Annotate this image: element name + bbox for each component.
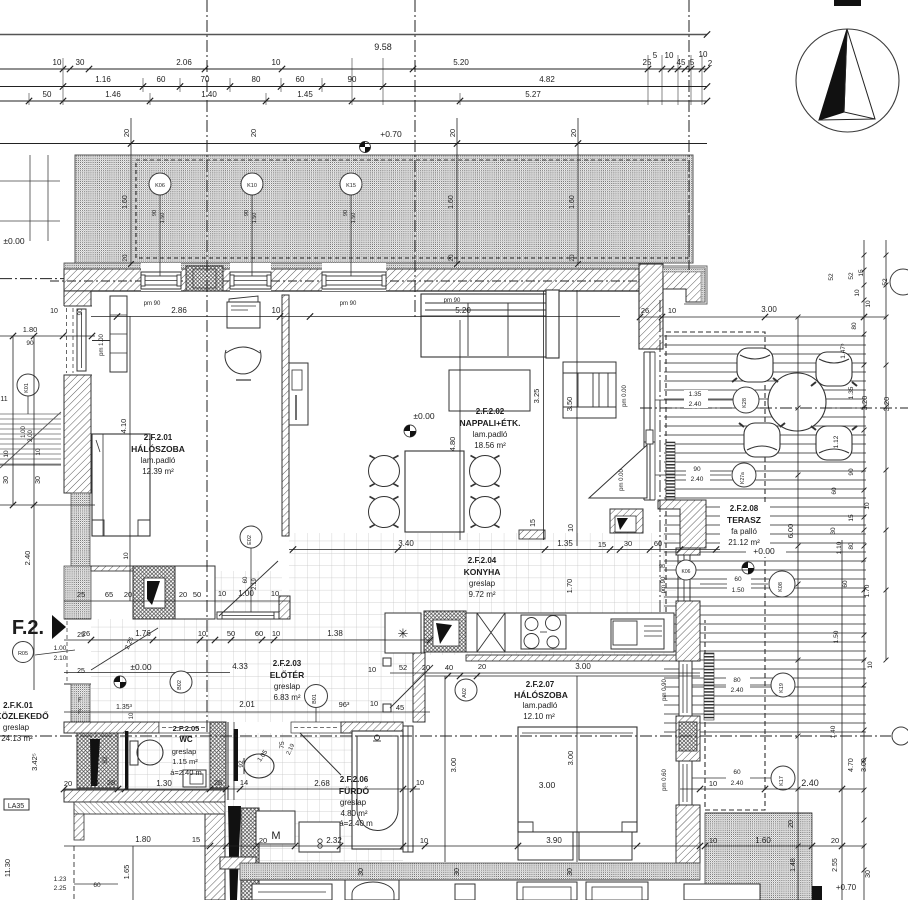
svg-text:20: 20 [422, 663, 430, 672]
svg-text:3.42⁵: 3.42⁵ [30, 753, 39, 771]
svg-text:2.25: 2.25 [54, 885, 67, 892]
svg-text:greslap: greslap [3, 723, 30, 732]
svg-text:±0.00: ±0.00 [3, 236, 24, 246]
svg-text:KONYHA: KONYHA [464, 567, 501, 577]
svg-text:2.F.2.08: 2.F.2.08 [730, 504, 759, 513]
svg-text:3.00: 3.00 [861, 758, 868, 772]
svg-text:60: 60 [157, 75, 166, 84]
svg-text:3.20: 3.20 [860, 396, 869, 411]
svg-text:9.58: 9.58 [374, 42, 392, 52]
svg-text:90: 90 [348, 75, 357, 84]
svg-text:✳: ✳ [398, 626, 409, 641]
svg-text:M: M [271, 830, 280, 842]
svg-text:10: 10 [368, 665, 376, 674]
svg-text:15: 15 [530, 519, 537, 527]
svg-text:5.20: 5.20 [453, 58, 469, 67]
svg-text:10: 10 [35, 448, 42, 456]
svg-text:10: 10 [218, 589, 226, 598]
svg-text:pm 0.60: pm 0.60 [662, 769, 668, 791]
svg-text:WC: WC [179, 735, 193, 744]
svg-text:1.35: 1.35 [557, 539, 573, 548]
svg-text:1.80: 1.80 [23, 325, 38, 334]
svg-text:FÜRDŐ: FÜRDŐ [339, 785, 370, 796]
svg-text:60: 60 [255, 629, 263, 638]
svg-text:ELŐTÉR: ELŐTÉR [270, 669, 304, 680]
svg-text:6.00: 6.00 [786, 524, 795, 539]
svg-text:24.13 m²: 24.13 m² [1, 734, 33, 743]
svg-text:26: 26 [641, 306, 649, 315]
svg-text:1.60: 1.60 [448, 195, 455, 209]
svg-text:1.30: 1.30 [156, 779, 172, 788]
svg-text:1.48: 1.48 [790, 858, 797, 872]
svg-text:10: 10 [271, 589, 279, 598]
svg-text:4.80: 4.80 [448, 437, 457, 452]
svg-text:F.2.: F.2. [12, 617, 44, 639]
svg-text:2.00: 2.00 [28, 430, 34, 442]
svg-text:lam.padló: lam.padló [523, 701, 558, 710]
svg-text:10: 10 [709, 779, 717, 788]
svg-text:14: 14 [240, 778, 248, 787]
svg-text:10: 10 [198, 629, 206, 638]
svg-text:1.12: 1.12 [833, 435, 840, 448]
svg-text:2: 2 [708, 59, 713, 68]
svg-text:20: 20 [569, 129, 578, 137]
svg-text:20: 20 [478, 662, 486, 671]
svg-text:90: 90 [693, 466, 701, 473]
svg-text:greslap: greslap [172, 747, 197, 756]
svg-text:52: 52 [828, 273, 835, 281]
svg-text:90: 90 [848, 468, 855, 476]
svg-text:3.00: 3.00 [761, 305, 777, 314]
svg-text:LA35: LA35 [8, 803, 24, 810]
svg-text:2.F.2.01: 2.F.2.01 [144, 433, 173, 442]
svg-text:2.19: 2.19 [252, 578, 258, 590]
svg-text:lam.padló: lam.padló [473, 430, 508, 439]
svg-text:+0.00: +0.00 [753, 546, 775, 556]
svg-text:2.86: 2.86 [171, 306, 187, 315]
svg-text:F: F [78, 710, 82, 716]
svg-text:96³: 96³ [339, 700, 350, 709]
svg-text:4.33: 4.33 [232, 662, 248, 671]
svg-text:2.F.2.02: 2.F.2.02 [476, 407, 505, 416]
svg-text:3.50: 3.50 [565, 397, 574, 412]
svg-text:92: 92 [238, 760, 245, 768]
svg-text:12.10 m²: 12.10 m² [523, 712, 555, 721]
svg-text:fa palló: fa palló [731, 527, 757, 536]
svg-text:5.20: 5.20 [455, 306, 471, 315]
svg-text:45: 45 [677, 58, 686, 67]
svg-text:52: 52 [882, 278, 889, 286]
svg-text:15: 15 [598, 540, 606, 549]
svg-text:5: 5 [653, 51, 658, 60]
svg-text:18.56 m²: 18.56 m² [474, 441, 506, 450]
svg-text:30: 30 [358, 868, 365, 876]
svg-text:80: 80 [851, 322, 858, 330]
svg-text:2.40: 2.40 [23, 551, 32, 566]
svg-text:4.82: 4.82 [539, 75, 555, 84]
svg-text:2.06: 2.06 [176, 58, 192, 67]
svg-text:3.00: 3.00 [575, 662, 591, 671]
svg-text:2.F.2.04: 2.F.2.04 [468, 556, 497, 565]
svg-text:15: 15 [192, 835, 200, 844]
svg-text:60: 60 [831, 487, 838, 495]
svg-text:6.83 m²: 6.83 m² [273, 693, 300, 702]
svg-text:3.40: 3.40 [398, 539, 414, 548]
svg-text:10: 10 [854, 289, 861, 297]
svg-text:1.50: 1.50 [732, 587, 745, 594]
svg-text:80: 80 [252, 75, 261, 84]
svg-text:10: 10 [129, 712, 135, 719]
svg-text:3.20: 3.20 [882, 397, 891, 412]
svg-text:3.00: 3.00 [449, 758, 458, 773]
svg-text:1.38: 1.38 [327, 629, 343, 638]
svg-text:30: 30 [830, 527, 837, 535]
svg-text:10: 10 [272, 58, 281, 67]
svg-text:30: 30 [567, 868, 574, 876]
svg-text:28: 28 [107, 778, 115, 787]
svg-text:40: 40 [445, 663, 453, 672]
svg-text:NAPPALI+ÉTK.: NAPPALI+ÉTK. [459, 418, 520, 428]
svg-text:10: 10 [272, 306, 281, 315]
svg-text:1.60: 1.60 [122, 195, 129, 209]
svg-text:2.55: 2.55 [832, 858, 839, 872]
svg-text:B02: B02 [177, 680, 183, 690]
svg-text:90: 90 [244, 210, 250, 216]
svg-text:3.90: 3.90 [546, 836, 562, 845]
svg-text:2.40: 2.40 [801, 778, 819, 788]
svg-text:50: 50 [43, 90, 52, 99]
svg-text:R05: R05 [18, 651, 28, 657]
svg-text:1.65: 1.65 [122, 865, 131, 880]
svg-text:30: 30 [624, 539, 632, 548]
svg-text:10: 10 [50, 308, 58, 315]
svg-text:1.15 m²: 1.15 m² [172, 757, 198, 766]
svg-text:HÁLÓSZOBA: HÁLÓSZOBA [131, 443, 185, 454]
svg-text:1.35³: 1.35³ [116, 704, 133, 711]
svg-text:30: 30 [865, 870, 872, 878]
svg-text:1.60: 1.60 [569, 195, 576, 209]
svg-text:60: 60 [296, 75, 305, 84]
svg-text:80: 80 [848, 542, 855, 550]
svg-text:9.72 m²: 9.72 m² [468, 590, 495, 599]
svg-text:90: 90 [152, 210, 158, 216]
svg-text:pm 90: pm 90 [444, 298, 461, 304]
svg-text:pm 1.00: pm 1.00 [99, 334, 105, 356]
svg-text:1.50: 1.50 [252, 213, 258, 224]
svg-text:20: 20 [64, 779, 72, 788]
svg-text:3.25: 3.25 [532, 389, 541, 404]
svg-text:±0.00: ±0.00 [130, 662, 151, 672]
svg-text:1.45: 1.45 [297, 90, 313, 99]
svg-text:á=2.40 m: á=2.40 m [170, 768, 201, 777]
svg-text:60: 60 [654, 539, 662, 548]
svg-text:90: 90 [659, 564, 665, 570]
svg-text:1.60: 1.60 [755, 836, 771, 845]
svg-text:20: 20 [122, 254, 129, 262]
svg-text:2.F.K.01: 2.F.K.01 [3, 701, 33, 710]
svg-text:pm 90: pm 90 [144, 301, 161, 307]
svg-text:2.01: 2.01 [239, 700, 255, 709]
svg-text:K10: K10 [247, 183, 257, 189]
svg-text:25: 25 [77, 632, 85, 639]
svg-text:15: 15 [848, 514, 855, 522]
svg-text:60: 60 [243, 576, 249, 583]
svg-text:2.F.2.06: 2.F.2.06 [340, 775, 369, 784]
svg-text:2.40: 2.40 [691, 476, 704, 483]
svg-text:45: 45 [396, 703, 404, 712]
svg-text:25: 25 [77, 590, 85, 599]
svg-text:12.39 m²: 12.39 m² [142, 467, 174, 476]
svg-text:24: 24 [91, 778, 99, 787]
svg-text:1.40: 1.40 [201, 90, 217, 99]
svg-text:1.35: 1.35 [848, 386, 855, 399]
svg-text:K06: K06 [155, 183, 165, 189]
svg-text:10: 10 [272, 629, 280, 638]
svg-text:3.00: 3.00 [566, 751, 575, 766]
svg-text:B01: B01 [312, 694, 318, 704]
svg-text:25: 25 [643, 58, 652, 67]
svg-text:10: 10 [53, 58, 62, 67]
svg-text:20: 20 [448, 129, 457, 137]
svg-text:60: 60 [733, 769, 741, 776]
svg-text:+0.70: +0.70 [380, 129, 402, 139]
svg-text:1.47⁵: 1.47⁵ [840, 343, 847, 359]
svg-text:1.46: 1.46 [105, 90, 121, 99]
svg-text:3.00: 3.00 [539, 780, 556, 790]
svg-text:10: 10 [370, 699, 378, 708]
svg-text:F: F [78, 698, 82, 704]
svg-text:10: 10 [3, 450, 10, 458]
svg-text:50: 50 [227, 629, 235, 638]
svg-text:2.32: 2.32 [326, 836, 342, 845]
svg-text:60: 60 [93, 882, 101, 889]
svg-text:greslap: greslap [469, 579, 496, 588]
svg-text:2.68: 2.68 [314, 779, 330, 788]
svg-text:10: 10 [420, 836, 428, 845]
svg-text:90: 90 [343, 210, 349, 216]
svg-text:1.35: 1.35 [689, 391, 702, 398]
svg-text:1.23: 1.23 [54, 876, 67, 883]
svg-text:10: 10 [668, 306, 676, 315]
svg-text:2.10: 2.10 [54, 655, 67, 662]
svg-text:60: 60 [734, 576, 742, 583]
svg-text:1.50: 1.50 [351, 213, 357, 224]
svg-text:K28: K28 [742, 398, 748, 408]
svg-text:4.10: 4.10 [119, 419, 128, 434]
svg-text:20: 20 [569, 254, 576, 262]
svg-text:10: 10 [865, 300, 872, 308]
svg-text:TERASZ: TERASZ [727, 515, 761, 525]
svg-text:K27a: K27a [740, 472, 746, 484]
svg-text:30: 30 [35, 476, 42, 484]
svg-text:10: 10 [416, 778, 424, 787]
svg-text:pm 0.00: pm 0.00 [622, 385, 628, 407]
svg-text:20: 20 [124, 590, 132, 599]
svg-text:20: 20 [122, 129, 131, 137]
svg-text:20: 20 [179, 590, 187, 599]
svg-text:20: 20 [788, 820, 795, 828]
svg-text:5.27: 5.27 [525, 90, 541, 99]
svg-text:pm 0.90: pm 0.90 [662, 679, 668, 701]
svg-text:2.40: 2.40 [731, 780, 744, 787]
svg-text:10: 10 [123, 552, 130, 560]
svg-text:60: 60 [842, 580, 849, 588]
svg-text:greslap: greslap [274, 682, 301, 691]
svg-text:4.70: 4.70 [848, 758, 855, 772]
svg-text:1.40: 1.40 [830, 725, 837, 738]
svg-text:20: 20 [259, 836, 267, 845]
svg-text:2.40: 2.40 [731, 687, 744, 694]
svg-text:30: 30 [3, 476, 10, 484]
svg-text:K19: K19 [779, 683, 785, 693]
svg-text:10: 10 [568, 524, 575, 532]
svg-text:2.F.2.07: 2.F.2.07 [526, 680, 555, 689]
svg-text:á=2.40 m: á=2.40 m [339, 819, 373, 828]
svg-text:1.70: 1.70 [565, 579, 574, 594]
svg-text:70: 70 [201, 75, 210, 84]
svg-text:20: 20 [831, 836, 839, 845]
svg-text:HÁLÓSZOBA: HÁLÓSZOBA [514, 689, 568, 700]
svg-text:10: 10 [867, 661, 874, 669]
svg-text:65: 65 [105, 590, 113, 599]
svg-text:±0.00: ±0.00 [413, 411, 434, 421]
svg-text:lam.padló: lam.padló [141, 456, 176, 465]
svg-text:1.16: 1.16 [95, 75, 111, 84]
svg-text:4.80 m²: 4.80 m² [340, 809, 367, 818]
svg-text:K17: K17 [779, 776, 785, 786]
svg-text:1.10: 1.10 [836, 541, 843, 554]
svg-text:pm 90: pm 90 [661, 576, 667, 593]
svg-text:K08: K08 [778, 582, 784, 592]
svg-text:1.70: 1.70 [864, 584, 871, 597]
svg-text:25: 25 [77, 668, 85, 675]
svg-text:2.F.2.05: 2.F.2.05 [173, 724, 200, 733]
svg-text:11.30: 11.30 [3, 859, 12, 877]
svg-text:10: 10 [709, 836, 717, 845]
svg-text:11: 11 [0, 396, 7, 403]
svg-text:10: 10 [864, 502, 871, 510]
svg-text:20: 20 [448, 254, 455, 262]
svg-text:1.50: 1.50 [160, 213, 166, 224]
svg-text:30: 30 [76, 58, 85, 67]
svg-text:50: 50 [193, 590, 201, 599]
svg-text:1.00: 1.00 [21, 426, 27, 438]
svg-text:80: 80 [733, 677, 741, 684]
svg-text:A02: A02 [462, 688, 468, 698]
svg-text:1.50: 1.50 [833, 630, 840, 643]
svg-text:15: 15 [858, 269, 865, 277]
svg-text:52: 52 [399, 663, 407, 672]
svg-text:K15: K15 [346, 183, 356, 189]
svg-text:1.00: 1.00 [238, 589, 254, 598]
svg-text:+0.70: +0.70 [836, 883, 857, 892]
svg-text:10: 10 [699, 50, 708, 59]
svg-text:90: 90 [26, 340, 34, 347]
svg-text:26: 26 [214, 778, 222, 787]
svg-text:2.40: 2.40 [689, 401, 702, 408]
svg-text:K01: K01 [24, 383, 30, 393]
svg-text:K06: K06 [682, 569, 691, 575]
svg-text:2.F.2.03: 2.F.2.03 [273, 659, 302, 668]
svg-text:1.80: 1.80 [135, 835, 151, 844]
svg-text:20: 20 [249, 129, 258, 137]
svg-text:75: 75 [279, 741, 286, 749]
svg-text:greslap: greslap [340, 798, 367, 807]
svg-text:90: 90 [78, 308, 84, 315]
svg-text:92: 92 [102, 756, 109, 764]
svg-text:10: 10 [665, 51, 674, 60]
svg-text:pm 90: pm 90 [340, 301, 357, 307]
svg-text:5: 5 [690, 58, 695, 67]
svg-text:KÖZLEKEDŐ: KÖZLEKEDŐ [0, 710, 49, 721]
svg-text:pm 0.00: pm 0.00 [619, 469, 625, 491]
svg-text:E02: E02 [247, 535, 253, 545]
svg-text:30: 30 [454, 868, 461, 876]
svg-text:52: 52 [848, 272, 855, 280]
